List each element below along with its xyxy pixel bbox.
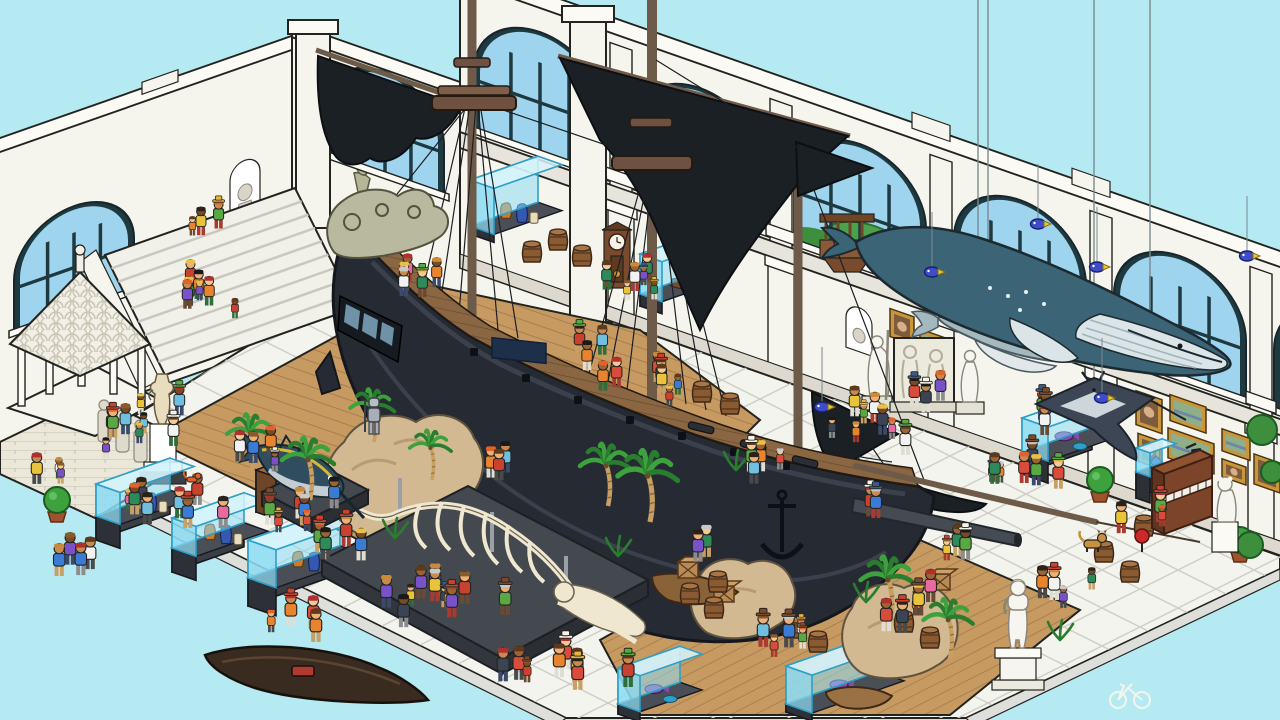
- museum-scene: [0, 0, 1280, 720]
- barrel[interactable]: [705, 597, 724, 618]
- main-corner-pillar: [562, 6, 614, 340]
- barrel[interactable]: [1121, 561, 1140, 582]
- pilaster: [1245, 265, 1277, 542]
- barrel[interactable]: [921, 627, 940, 648]
- barrel[interactable]: [709, 571, 728, 592]
- barrel[interactable]: [523, 241, 542, 262]
- corner-pillar-cap: [288, 20, 338, 34]
- piano-stool[interactable]: [1135, 529, 1149, 543]
- barrel[interactable]: [809, 631, 828, 652]
- barrel[interactable]: [681, 583, 700, 604]
- barrel[interactable]: [693, 381, 712, 402]
- barrel[interactable]: [549, 229, 568, 250]
- barrel[interactable]: [721, 393, 740, 414]
- scene-canvas[interactable]: [0, 0, 1280, 720]
- barrel[interactable]: [573, 245, 592, 266]
